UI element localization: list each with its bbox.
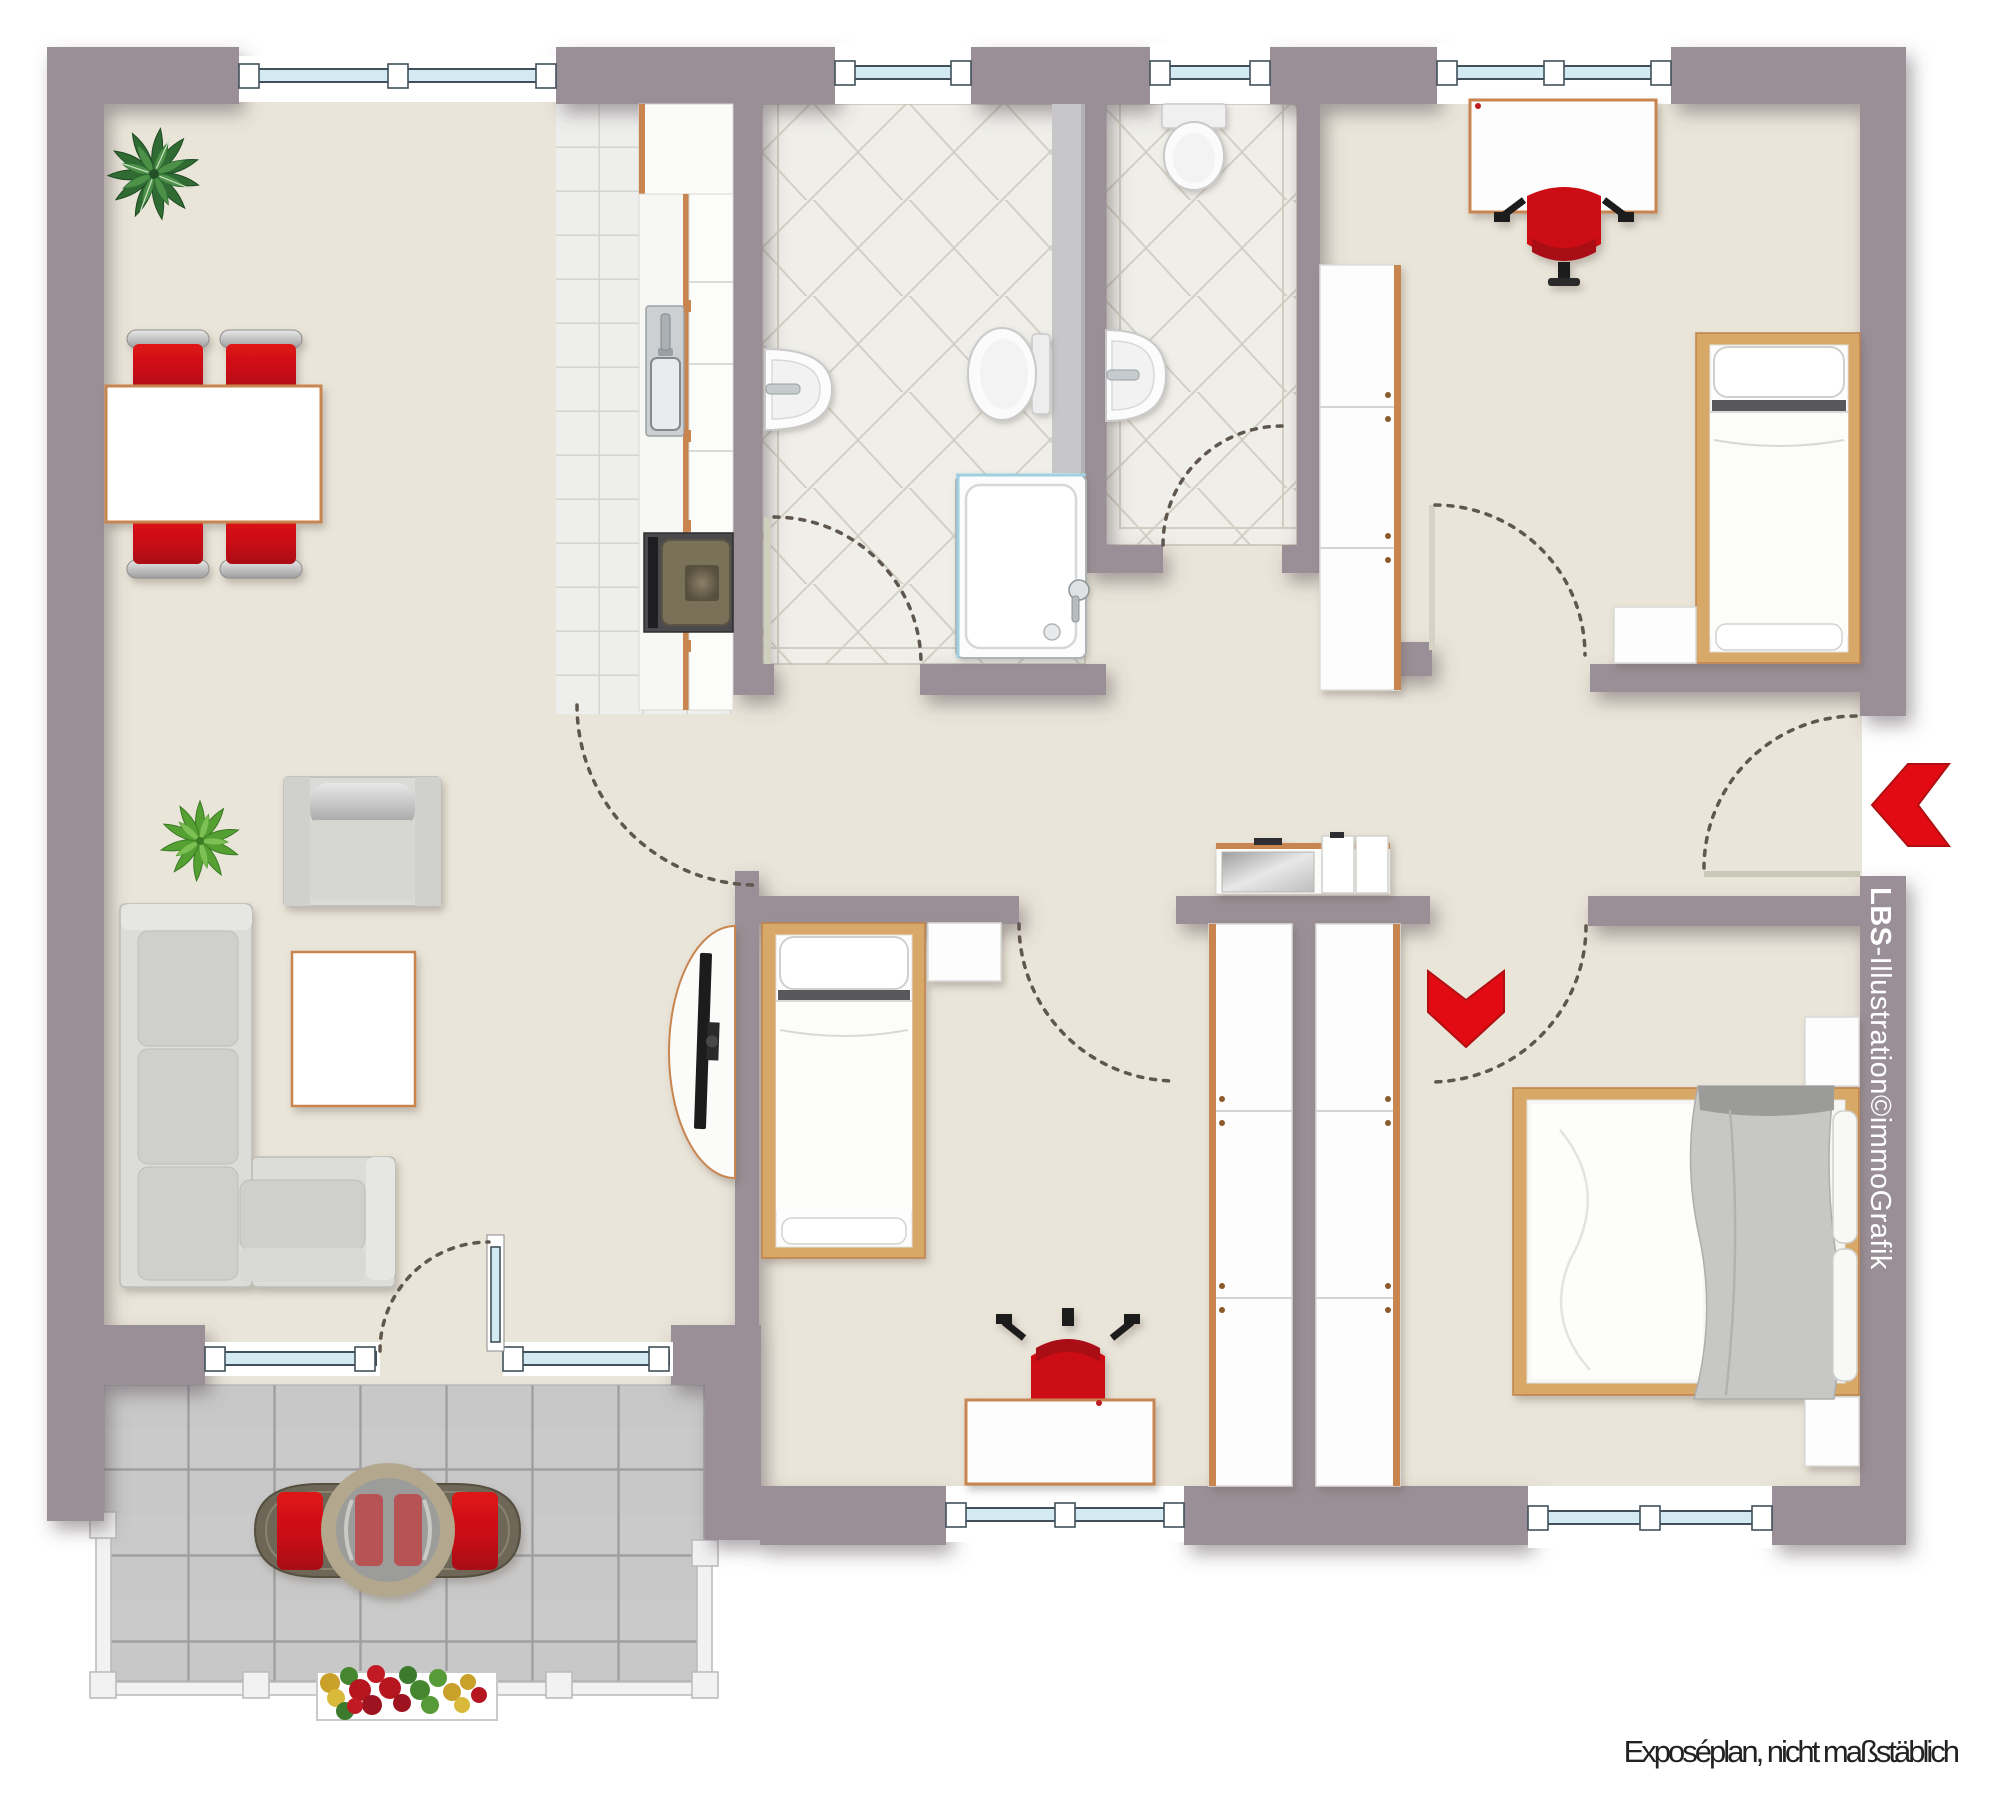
svg-text:Exposéplan, nicht maßstäblich: Exposéplan, nicht maßstäblich <box>1624 1734 1959 1769</box>
svg-text:LBS-Illustration©immoGrafik: LBS-Illustration©immoGrafik <box>1864 887 1896 1270</box>
